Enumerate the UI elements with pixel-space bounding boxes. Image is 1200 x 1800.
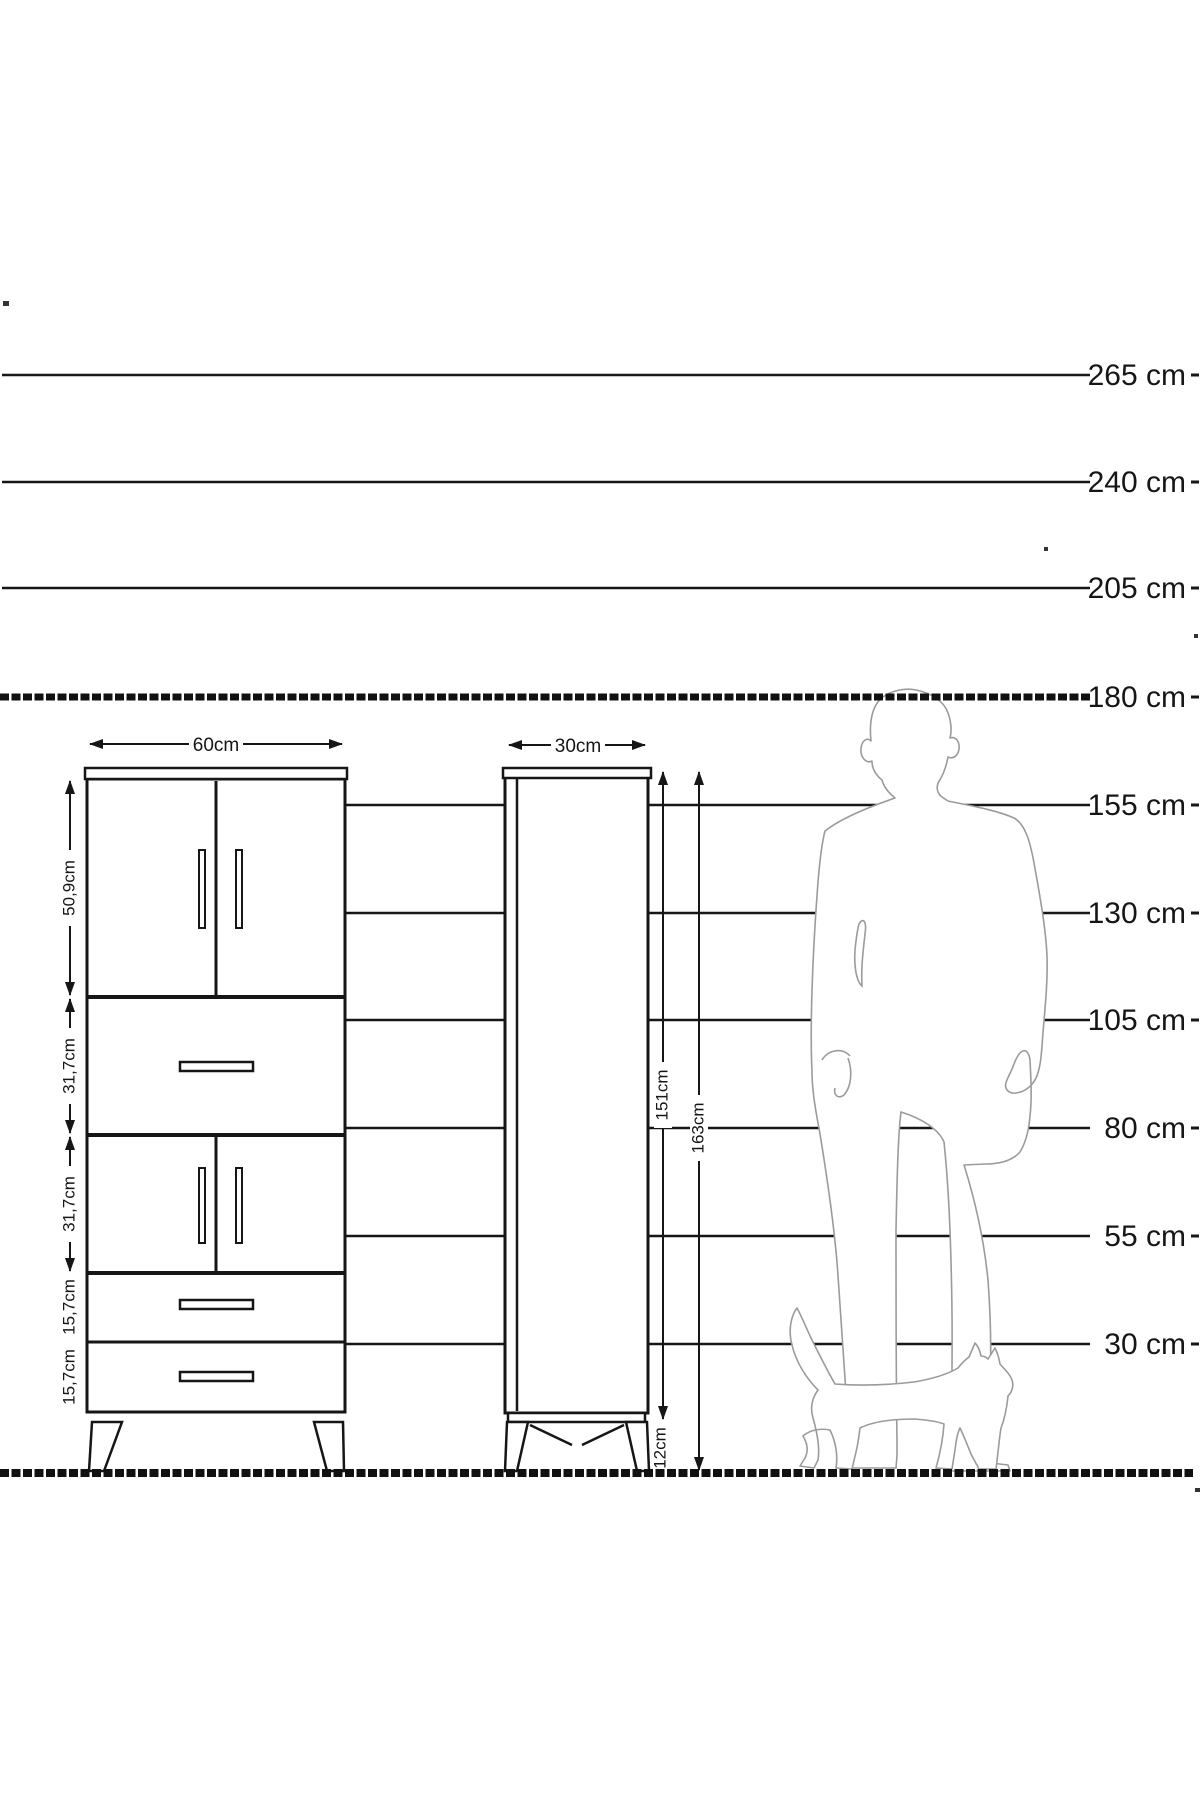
scale-label-130: 130 cm xyxy=(1088,897,1186,930)
door-handle xyxy=(236,1168,242,1243)
side-top-panel xyxy=(503,768,651,778)
total-height-label: 163cm xyxy=(688,1102,707,1153)
side-width-label: 30cm xyxy=(555,736,601,757)
side-leg-brace-left xyxy=(530,1425,572,1445)
drawer-handle xyxy=(180,1372,253,1381)
front-left-leg xyxy=(89,1422,122,1471)
scale-label-105: 105 cm xyxy=(1088,1004,1186,1037)
leg-height-label: 12cm xyxy=(650,1427,669,1469)
side-left-leg xyxy=(505,1422,528,1471)
man-silhouette xyxy=(811,689,1047,1471)
door-handle xyxy=(236,850,242,928)
door-handle xyxy=(199,1168,205,1243)
section-label-5: 15,7cm xyxy=(59,1349,78,1405)
scale-label-155: 155 cm xyxy=(1088,789,1186,822)
diagram-canvas: 60cm 50,9cm 31,7cm 31,7cm 15,7cm 15,7cm xyxy=(0,0,1200,1800)
section-label-4: 15,7cm xyxy=(59,1279,78,1335)
side-view xyxy=(503,768,651,1471)
drawer-handle xyxy=(180,1062,253,1071)
scale-label-240: 240 cm xyxy=(1088,466,1186,499)
drawer-handle xyxy=(180,1300,253,1309)
scale-label-55: 55 cm xyxy=(1104,1220,1186,1253)
scale-label-180: 180 cm xyxy=(1088,681,1186,714)
man-outline xyxy=(811,689,1047,1471)
side-legs xyxy=(505,1422,649,1471)
body-height-label: 151cm xyxy=(652,1069,671,1120)
front-top-panel xyxy=(85,768,347,779)
scale-label-80: 80 cm xyxy=(1104,1112,1186,1145)
scale-label-30: 30 cm xyxy=(1104,1328,1186,1361)
side-plinth xyxy=(508,1413,645,1422)
front-right-leg xyxy=(314,1422,344,1471)
dimension-diagram: 60cm 50,9cm 31,7cm 31,7cm 15,7cm 15,7cm xyxy=(0,0,1200,1800)
side-body xyxy=(505,777,648,1413)
front-width-label: 60cm xyxy=(193,735,239,756)
side-leg-brace-right xyxy=(582,1425,624,1445)
section-label-1: 50,9cm xyxy=(59,860,78,916)
front-view xyxy=(85,768,347,1471)
scale-label-265: 265 cm xyxy=(1088,359,1186,392)
scale-label-205: 205 cm xyxy=(1088,572,1186,605)
front-legs xyxy=(89,1422,344,1471)
side-right-leg xyxy=(626,1422,649,1471)
section-label-3: 31,7cm xyxy=(59,1176,78,1232)
section-label-2: 31,7cm xyxy=(59,1038,78,1094)
door-handle xyxy=(199,850,205,928)
height-scale-labels: 265 cm 240 cm 205 cm 180 cm 155 cm 130 c… xyxy=(1088,359,1199,1361)
